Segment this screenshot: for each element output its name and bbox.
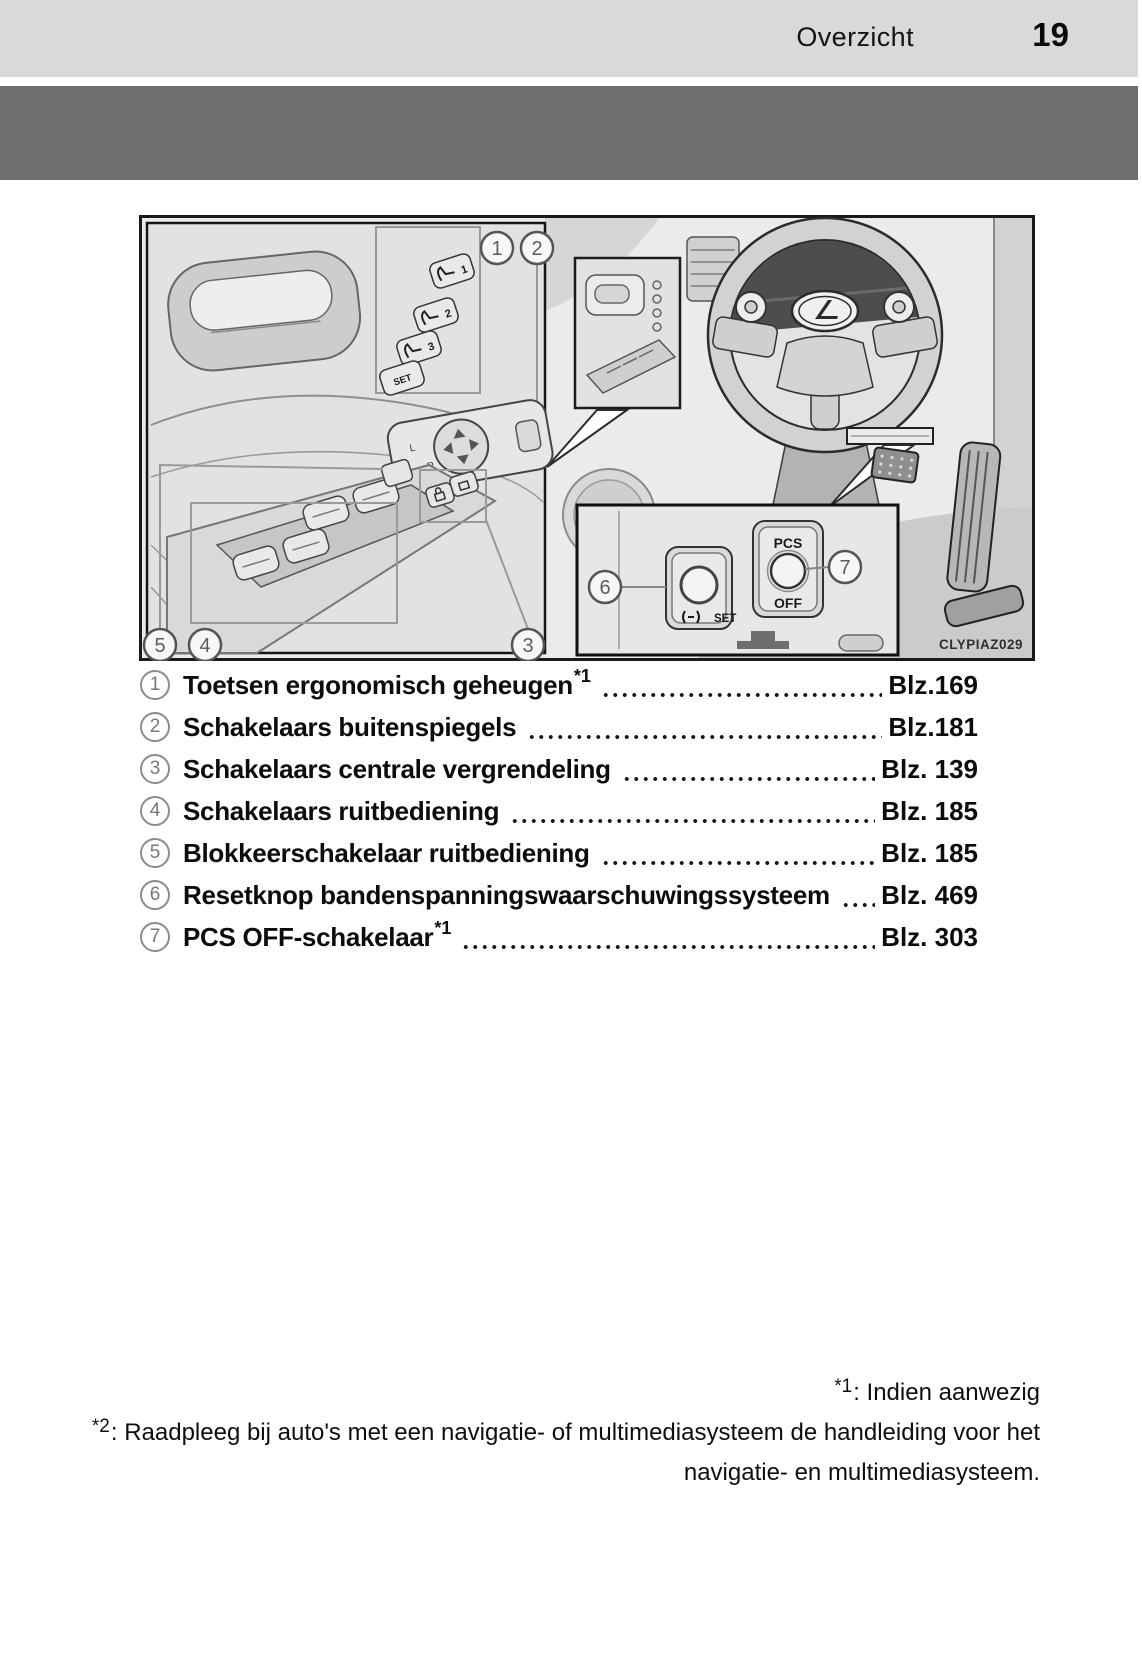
legend-label: Blokkeerschakelaar ruitbediening — [183, 838, 590, 869]
lexus-emblem — [792, 291, 858, 331]
legend-row: 2 Schakelaars buitenspiegels Blz.181 — [140, 706, 978, 748]
svg-text:OFF: OFF — [774, 595, 802, 611]
legend-label: PCS OFF-schakelaar — [183, 922, 433, 953]
item-number-badge: 6 — [140, 880, 170, 910]
legend-row: 4 Schakelaars ruitbediening Blz. 185 — [140, 790, 978, 832]
dot-leader — [601, 859, 876, 865]
footnote-1: *1: Indien aanwezig — [30, 1374, 1040, 1414]
footnotes: *1: Indien aanwezig *2: Raadpleeg bij au… — [30, 1374, 1040, 1492]
brake-pedal — [871, 447, 919, 483]
item-number-badge: 2 — [140, 712, 170, 742]
svg-text:7: 7 — [839, 557, 850, 579]
page-ref: Blz.181 — [888, 712, 978, 743]
footnote-2-continued: navigatie- en multimediasysteem. — [30, 1454, 1040, 1492]
door-handle — [164, 247, 364, 374]
legend-row: 5 Blokkeerschakelaar ruitbediening Blz. … — [140, 832, 978, 874]
callout-5: 5 — [144, 629, 176, 661]
callout-6: 6 — [589, 571, 621, 603]
footnote-2: *2: Raadpleeg bij auto's met een navigat… — [30, 1414, 1040, 1454]
callout-2: 2 — [521, 232, 553, 264]
legend-label: Resetknop bandenspanningswaarschuwingssy… — [183, 880, 830, 911]
legend-label: Schakelaars ruitbediening — [183, 796, 499, 827]
legend: 1 Toetsen ergonomisch geheugen*1 Blz.169… — [140, 664, 978, 958]
car-interior-diagram: 1 2 3 SET — [139, 215, 1035, 661]
callout-4: 4 — [189, 629, 221, 661]
item-number-badge: 5 — [140, 838, 170, 868]
footnote-marker: *1 — [834, 1376, 852, 1397]
dot-leader — [461, 943, 875, 949]
legend-row: 6 Resetknop bandenspanningswaarschuwings… — [140, 874, 978, 916]
callout-3: 3 — [512, 629, 544, 661]
svg-text:PCS: PCS — [774, 535, 803, 551]
item-number-badge: 4 — [140, 796, 170, 826]
page-ref: Blz. 139 — [881, 754, 978, 785]
footnote-ref: *1 — [434, 918, 451, 939]
legend-label: Toetsen ergonomisch geheugen — [183, 670, 573, 701]
legend-row: 3 Schakelaars centrale vergrendeling Blz… — [140, 748, 978, 790]
item-number-badge: 1 — [140, 670, 170, 700]
item-number-badge: 7 — [140, 922, 170, 952]
svg-text:5: 5 — [154, 635, 165, 657]
page-number: 19 — [1032, 16, 1069, 54]
manual-page: Overzicht 19 — [0, 0, 1142, 1654]
door-panel-view: 1 2 3 SET — [147, 223, 555, 653]
page-ref: Blz.169 — [888, 670, 978, 701]
footnote-marker: *2 — [92, 1416, 110, 1437]
page-ref: Blz. 303 — [881, 922, 978, 953]
svg-text:6: 6 — [599, 577, 610, 599]
item-number-badge: 3 — [140, 754, 170, 784]
page-ref: Blz. 185 — [881, 838, 978, 869]
page-header-bar: Overzicht 19 — [0, 0, 1138, 77]
figure-code: CLYPIAZ029 — [939, 637, 1023, 652]
callout-7: 7 — [829, 551, 861, 583]
svg-text:3: 3 — [522, 635, 533, 657]
chapter-banner — [0, 86, 1138, 180]
legend-row: 1 Toetsen ergonomisch geheugen*1 Blz.169 — [140, 664, 978, 706]
dot-leader — [601, 691, 883, 697]
page-ref: Blz. 469 — [881, 880, 978, 911]
door-switch-locator-box — [575, 258, 680, 408]
dot-leader — [622, 775, 875, 781]
dot-leader — [510, 817, 875, 823]
callout-1: 1 — [481, 232, 513, 264]
tpms-set-button: SET — [666, 547, 736, 629]
airbag-pad — [777, 336, 873, 396]
figure-illustration: 1 2 3 SET — [139, 215, 1035, 661]
dot-leader — [841, 901, 875, 907]
legend-label: Schakelaars buitenspiegels — [183, 712, 516, 743]
footnote-ref: *1 — [574, 666, 591, 687]
svg-text:SET: SET — [714, 613, 736, 625]
legend-label: Schakelaars centrale vergrendeling — [183, 754, 611, 785]
svg-text:1: 1 — [491, 238, 502, 260]
svg-text:4: 4 — [199, 635, 210, 657]
page-ref: Blz. 185 — [881, 796, 978, 827]
svg-text:2: 2 — [531, 238, 542, 260]
legend-row: 7 PCS OFF-schakelaar*1 Blz. 303 — [140, 916, 978, 958]
section-title: Overzicht — [796, 22, 914, 53]
dot-leader — [527, 733, 882, 739]
